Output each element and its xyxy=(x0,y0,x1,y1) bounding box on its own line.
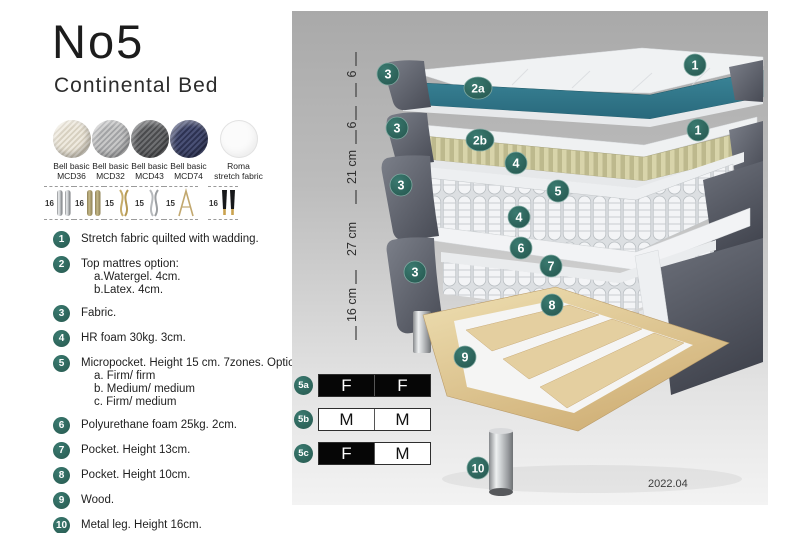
feature-text: Pocket. Height 13cm. xyxy=(81,444,190,456)
firmness-table: 5a F F 5b M M 5c F M xyxy=(294,375,431,477)
feature-item: 5 Micropocket. Height 15 cm. 7zones. Opt… xyxy=(53,355,305,409)
badge-hr-foam-top: 4 xyxy=(505,152,527,174)
firmness-row-badge: 5a xyxy=(294,376,313,395)
badge-hr-foam-bottom: 4 xyxy=(508,206,530,228)
badge-micropocket: 5 xyxy=(547,180,569,202)
feature-number-badge: 6 xyxy=(53,417,70,434)
diagram-panel: 6 6 21 cm 27 cm 16 cm xyxy=(292,11,768,505)
feature-number-badge: 7 xyxy=(53,442,70,459)
leg-height: 16 xyxy=(45,199,54,208)
firmness-row-badge: 5b xyxy=(294,410,313,429)
wood-cylinder-leg-icon xyxy=(85,188,103,218)
fabric-name: Bell basic xyxy=(170,161,206,171)
feature-subtext: c. Firm/ medium xyxy=(94,396,304,409)
badge-fabric-mid: 1 xyxy=(687,119,709,141)
svg-text:7: 7 xyxy=(548,260,555,274)
feature-text: Fabric. xyxy=(81,307,116,319)
badge-metal-leg: 10 xyxy=(467,457,489,479)
fabric-swatch-circle xyxy=(53,120,91,158)
svg-text:3: 3 xyxy=(385,68,392,82)
fabric-code: MCD32 xyxy=(96,171,125,181)
badge-pocket-10: 8 xyxy=(541,294,563,316)
page-title: No5 xyxy=(52,14,144,69)
leg-height: 15 xyxy=(166,199,175,208)
leg-option: 15 xyxy=(104,186,134,220)
svg-text:4: 4 xyxy=(516,211,523,225)
version-date: 2022.04 xyxy=(648,478,688,490)
leg-height: 16 xyxy=(75,199,84,208)
feature-number-badge: 8 xyxy=(53,467,70,484)
firmness-row: 5c F M xyxy=(294,443,431,464)
feature-number-badge: 9 xyxy=(53,492,70,509)
measurement-label: 6 xyxy=(345,70,359,77)
firmness-cell: M xyxy=(374,443,430,464)
leg-option: 16 xyxy=(208,186,238,220)
feature-text: Wood. xyxy=(81,494,114,506)
svg-text:3: 3 xyxy=(412,266,419,280)
svg-text:6: 6 xyxy=(518,242,525,256)
svg-text:5: 5 xyxy=(555,185,562,199)
leg-height: 15 xyxy=(135,199,144,208)
svg-text:8: 8 xyxy=(549,299,556,313)
badge-box-corner: 3 xyxy=(404,261,426,283)
silver-twist-leg-icon xyxy=(145,188,163,218)
page-subtitle: Continental Bed xyxy=(54,74,218,98)
firmness-row: 5b M M xyxy=(294,409,431,430)
chrome-cylinder-leg-icon xyxy=(55,188,73,218)
feature-item: 4 HR foam 30kg. 3cm. xyxy=(53,330,305,347)
feature-subtext: b.Latex. 4cm. xyxy=(94,284,181,297)
svg-text:10: 10 xyxy=(472,464,485,476)
badge-watergel: 2a xyxy=(464,77,492,99)
hairpin-leg-icon xyxy=(176,188,196,218)
svg-text:2b: 2b xyxy=(473,134,487,148)
fabric-swatch: Romastretch fabric xyxy=(219,120,258,181)
metal-leg xyxy=(489,428,513,496)
firmness-cell: M xyxy=(374,409,430,430)
leg-height: 16 xyxy=(209,199,218,208)
measurement-label: 21 cm xyxy=(345,150,359,184)
black-gold-leg-icon xyxy=(219,188,237,218)
feature-item: 7 Pocket. Height 13cm. xyxy=(53,442,305,459)
measurement-label: 16 cm xyxy=(345,288,359,322)
fabric-name: Bell basic xyxy=(92,161,128,171)
mattress-corner-shell xyxy=(382,155,439,240)
badge-topper-corner: 3 xyxy=(377,63,399,85)
svg-text:1: 1 xyxy=(692,59,699,73)
feature-item: 2 Top mattres option:a.Watergel. 4cm.b.L… xyxy=(53,256,305,297)
feature-number-badge: 1 xyxy=(53,231,70,248)
feature-item: 6 Polyurethane foam 25kg. 2cm. xyxy=(53,417,305,434)
leg-option: 16 xyxy=(44,186,74,220)
fabric-swatch-circle xyxy=(92,120,130,158)
leg-options: 16 16 15 15 xyxy=(44,186,238,220)
svg-text:3: 3 xyxy=(394,122,401,136)
feature-list: 1 Stretch fabric quilted with wadding. 2… xyxy=(53,231,305,533)
feature-number-badge: 3 xyxy=(53,305,70,322)
svg-text:9: 9 xyxy=(462,351,469,365)
fabric-swatch-circle xyxy=(220,120,258,158)
badge-mattress-corner: 3 xyxy=(390,174,412,196)
badge-latex: 2b xyxy=(466,129,494,151)
badge-pocket-13: 7 xyxy=(540,255,562,277)
box-27cm xyxy=(387,237,763,431)
product-sheet: No5 Continental Bed Bell basicMCD36 Bell… xyxy=(0,0,800,533)
fabric-name: Bell basic xyxy=(53,161,89,171)
feature-item: 8 Pocket. Height 10cm. xyxy=(53,467,305,484)
firmness-cell: F xyxy=(319,443,374,464)
fabric-swatches: Bell basicMCD36 Bell basicMCD32 Bell bas… xyxy=(52,120,258,181)
feature-text: Micropocket. Height 15 cm. 7zones. Optio… xyxy=(81,357,304,369)
fabric-name: Bell basic xyxy=(131,161,167,171)
measurement-label: 27 cm xyxy=(345,222,359,256)
feature-number-badge: 10 xyxy=(53,517,70,533)
fabric-swatch: Bell basicMCD32 xyxy=(91,120,130,181)
firmness-cell: F xyxy=(374,375,430,396)
feature-number-badge: 2 xyxy=(53,256,70,273)
firmness-cell: M xyxy=(319,409,374,430)
fabric-swatch: Bell basicMCD36 xyxy=(52,120,91,181)
fabric-swatch-circle xyxy=(170,120,208,158)
feature-subtext: b. Medium/ medium xyxy=(94,383,304,396)
feature-text: HR foam 30kg. 3cm. xyxy=(81,332,186,344)
badge-latex-corner: 3 xyxy=(386,117,408,139)
topper-watergel-layer xyxy=(385,48,763,127)
firmness-cell: F xyxy=(319,375,374,396)
fabric-swatch: Bell basicMCD43 xyxy=(130,120,169,181)
svg-text:4: 4 xyxy=(513,157,520,171)
feature-text: Top mattres option: xyxy=(81,258,179,270)
svg-text:3: 3 xyxy=(398,179,405,193)
svg-text:1: 1 xyxy=(695,124,702,138)
feature-subtext: a.Watergel. 4cm. xyxy=(94,271,181,284)
feature-number-badge: 5 xyxy=(53,355,70,372)
fabric-name: Roma xyxy=(227,161,250,171)
feature-item: 9 Wood. xyxy=(53,492,305,509)
badge-wood: 9 xyxy=(454,346,476,368)
leg-option: 15 xyxy=(134,186,164,220)
fabric-code: MCD74 xyxy=(174,171,203,181)
fabric-code: MCD36 xyxy=(57,171,86,181)
feature-item: 10 Metal leg. Height 16cm. xyxy=(53,517,305,533)
feature-text: Stretch fabric quilted with wadding. xyxy=(81,233,259,245)
feature-subtext: a. Firm/ firm xyxy=(94,370,304,383)
feature-text: Polyurethane foam 25kg. 2cm. xyxy=(81,419,237,431)
feature-number-badge: 4 xyxy=(53,330,70,347)
measurement-labels: 6 6 21 cm 27 cm 16 cm xyxy=(345,70,359,322)
feature-text: Metal leg. Height 16cm. xyxy=(81,519,202,531)
badge-fabric-top: 1 xyxy=(684,54,706,76)
leg-option: 16 xyxy=(74,186,104,220)
fabric-swatch: Bell basicMCD74 xyxy=(169,120,208,181)
fabric-swatch-circle xyxy=(131,120,169,158)
measurement-label: 6 xyxy=(345,121,359,128)
svg-text:2a: 2a xyxy=(471,82,485,96)
fabric-code: stretch fabric xyxy=(214,171,263,181)
leg-height: 15 xyxy=(105,199,114,208)
badge-pu-foam: 6 xyxy=(510,237,532,259)
fabric-code: MCD43 xyxy=(135,171,164,181)
feature-item: 1 Stretch fabric quilted with wadding. xyxy=(53,231,305,248)
feature-text: Pocket. Height 10cm. xyxy=(81,469,190,481)
firmness-row: 5a F F xyxy=(294,375,431,396)
leg-option: 15 xyxy=(164,186,198,220)
feature-item: 3 Fabric. xyxy=(53,305,305,322)
gold-twist-leg-icon xyxy=(115,188,133,218)
firmness-row-badge: 5c xyxy=(294,444,313,463)
